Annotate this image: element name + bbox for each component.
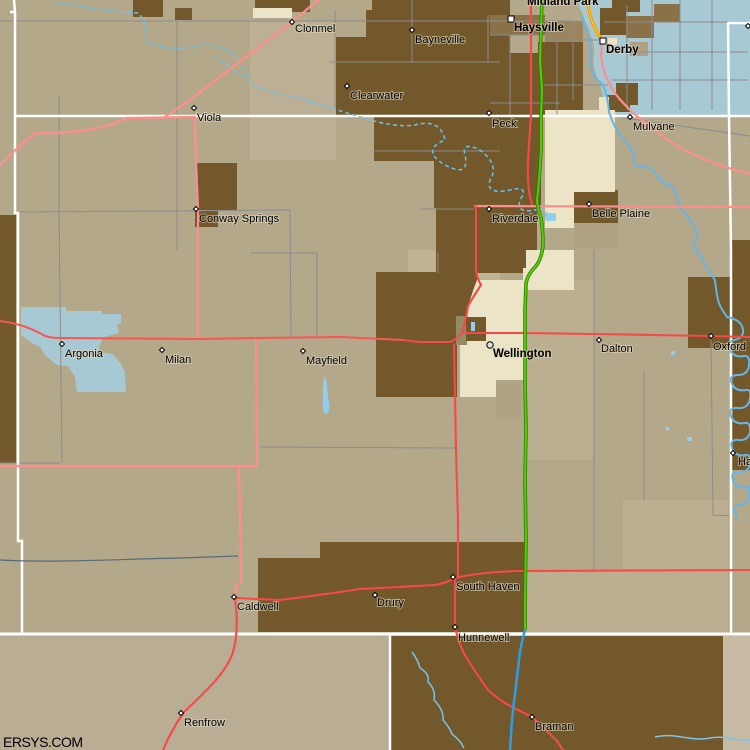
svg-text:Argonia: Argonia (65, 348, 104, 360)
svg-text:Mayfield: Mayfield (306, 355, 347, 367)
svg-text:Clearwater: Clearwater (350, 90, 404, 102)
svg-text:South Haven: South Haven (456, 581, 520, 593)
svg-text:Drury: Drury (377, 597, 404, 609)
svg-text:Milan: Milan (165, 354, 191, 366)
svg-text:Braman: Braman (535, 721, 574, 733)
svg-text:Derby: Derby (606, 44, 639, 56)
svg-text:ERSYS.COM: ERSYS.COM (3, 734, 83, 750)
svg-text:Mulvane: Mulvane (633, 121, 675, 133)
svg-text:Clonmel: Clonmel (295, 23, 335, 35)
svg-text:Dalton: Dalton (601, 343, 633, 355)
svg-text:Wellington: Wellington (493, 348, 552, 360)
svg-text:Oxford: Oxford (713, 341, 746, 353)
svg-text:Ha: Ha (738, 456, 750, 468)
svg-text:Hunnewell: Hunnewell (458, 632, 509, 644)
svg-text:Conway Springs: Conway Springs (199, 213, 280, 225)
svg-text:Riverdale: Riverdale (492, 213, 538, 225)
svg-text:Viola: Viola (197, 112, 222, 124)
svg-text:Haysville: Haysville (514, 22, 564, 34)
svg-text:Belle Plaine: Belle Plaine (592, 208, 650, 220)
svg-text:Bayneville: Bayneville (415, 34, 465, 46)
svg-text:Midland Park: Midland Park (527, 0, 599, 8)
svg-text:Renfrow: Renfrow (184, 717, 225, 729)
svg-text:Caldwell: Caldwell (237, 601, 279, 613)
svg-text:Peck: Peck (492, 118, 517, 130)
